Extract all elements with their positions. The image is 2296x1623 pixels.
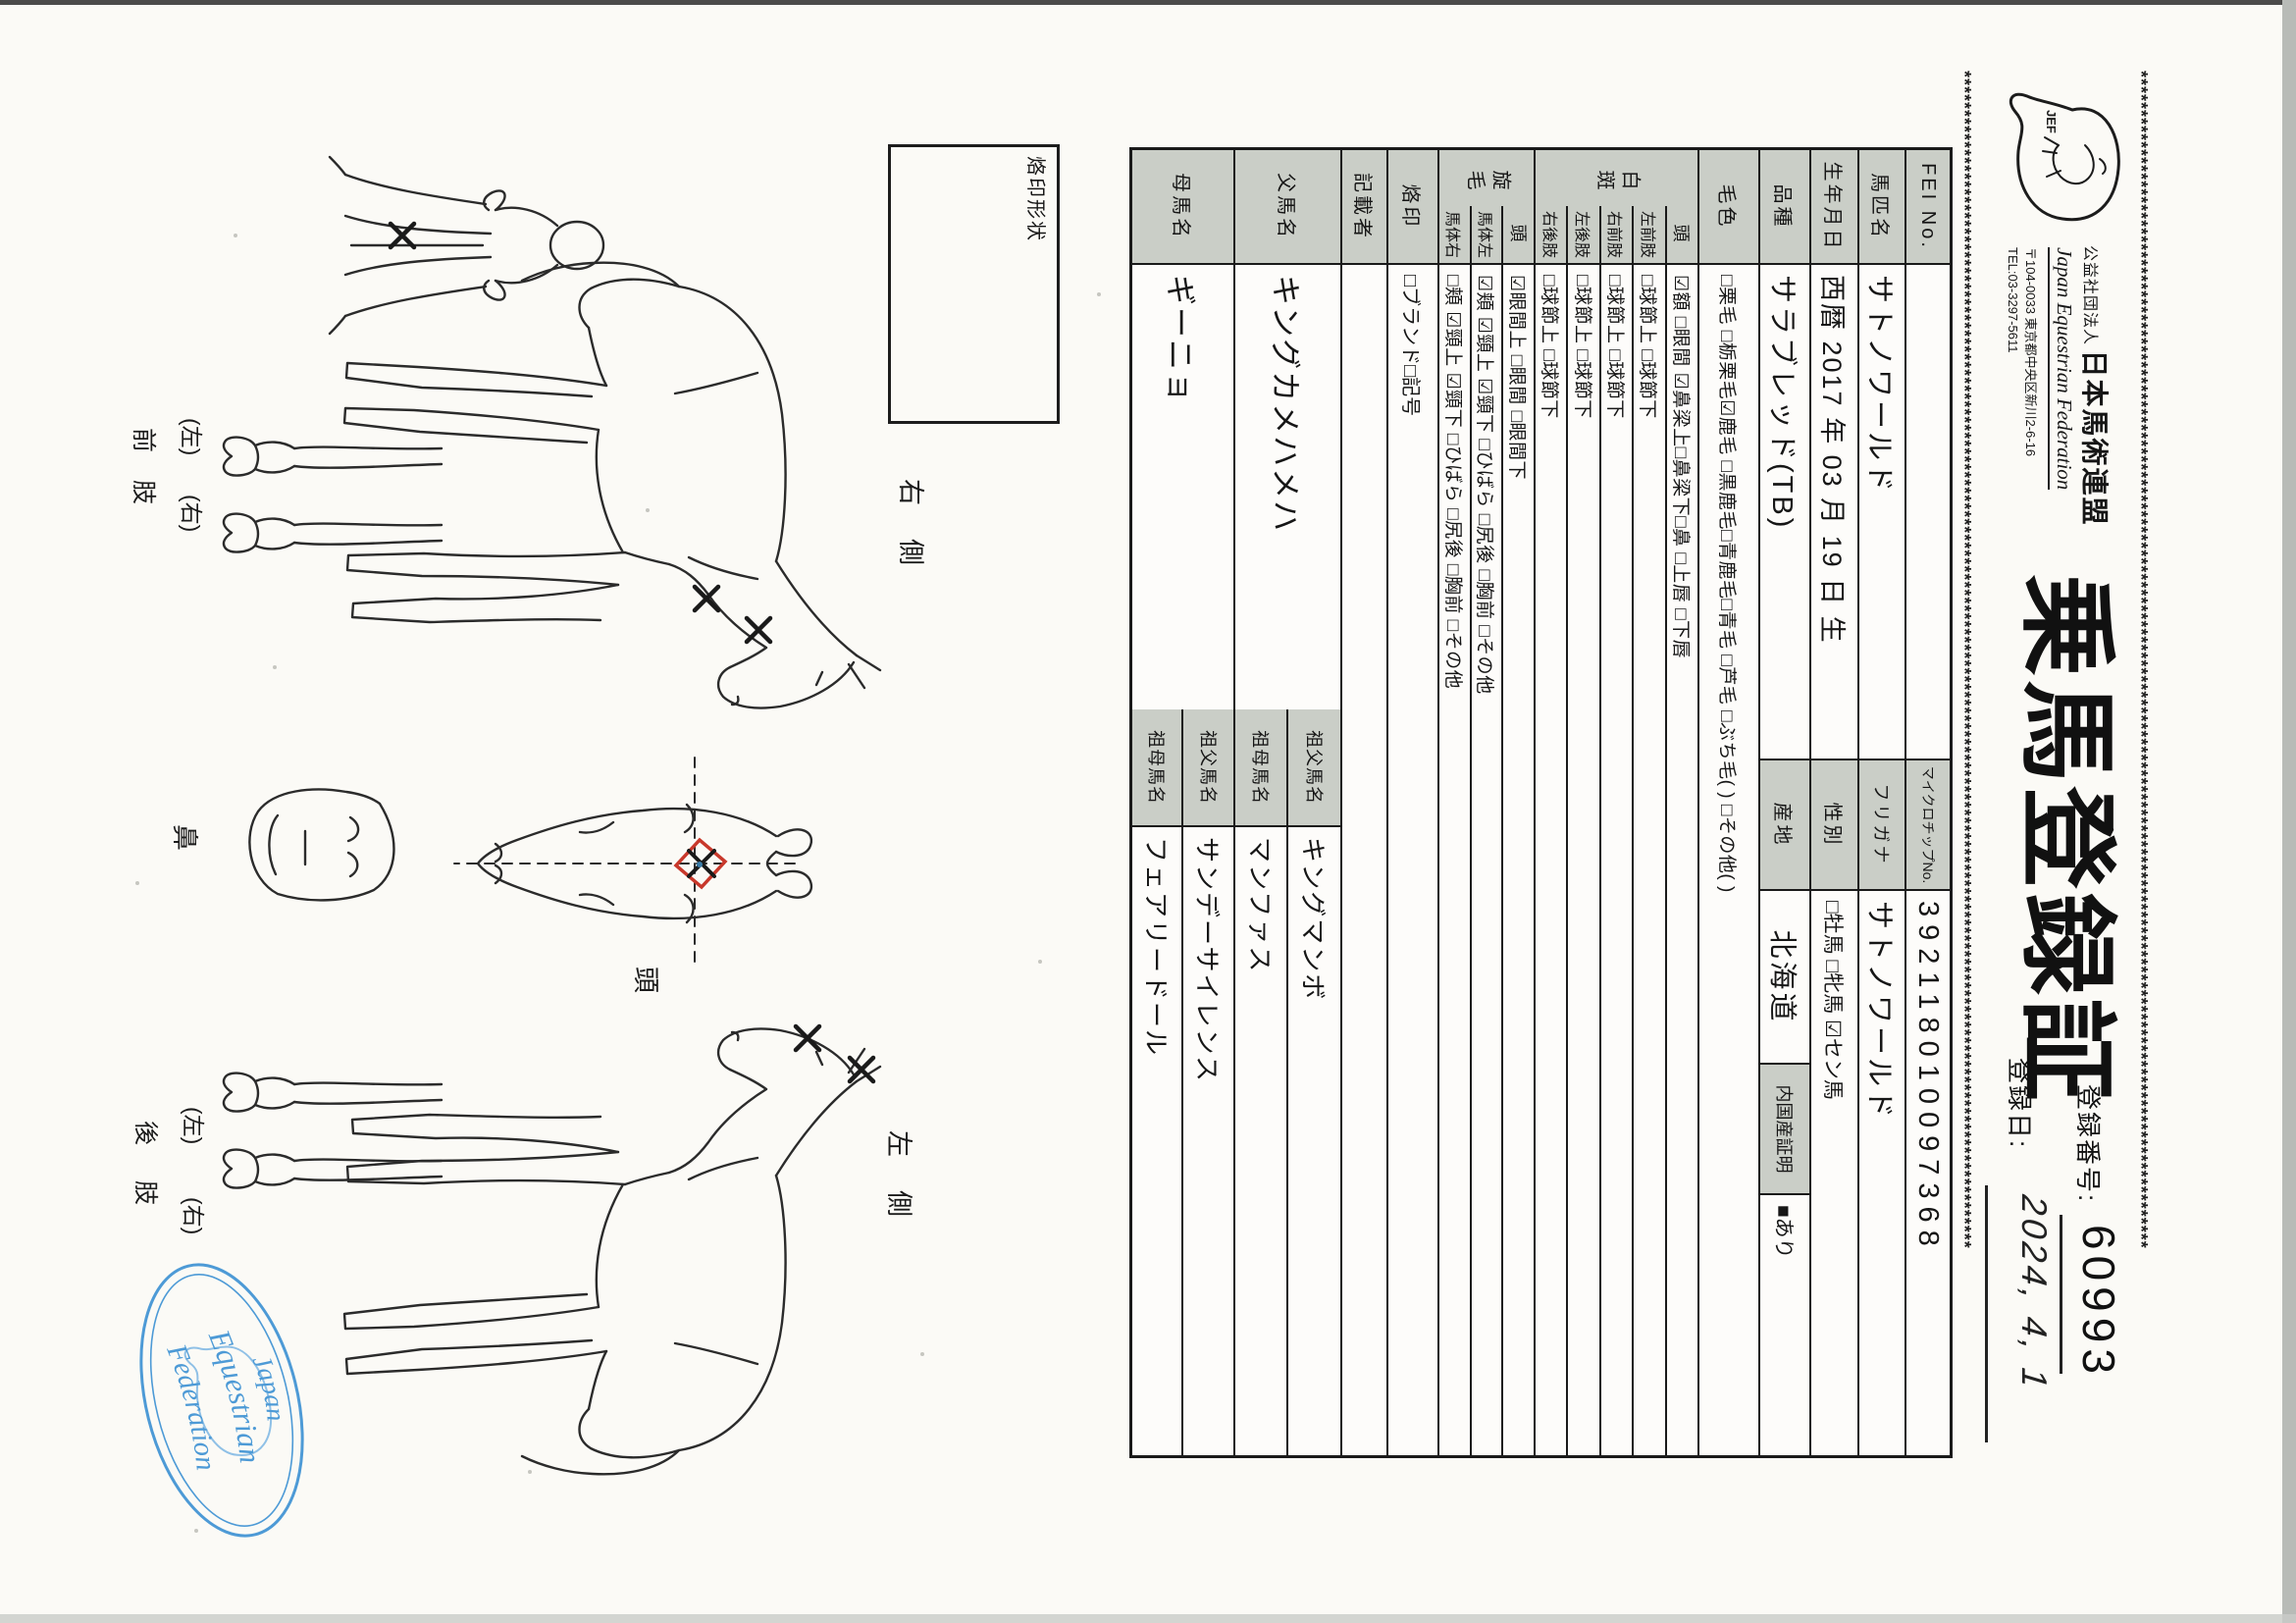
table-row-recorder: 記載者 [1342, 150, 1388, 1455]
scan-edge-bottom [0, 1614, 2296, 1623]
whorls-head-value: ☑眼間上 □眼間 □眼間下 [1503, 263, 1534, 1455]
scan-edge-right [2282, 0, 2296, 1623]
body-right-sublabel: 馬体右 [1439, 206, 1470, 263]
domestic-value: ■あり [1760, 1193, 1809, 1455]
furigana-label: フリガナ [1859, 759, 1905, 889]
origin-label: 産地 [1760, 759, 1809, 889]
org-type: 公益社団法人 [2081, 245, 2098, 345]
org-tel: TEL:03-3297-5611 [2006, 247, 2020, 352]
whorl-x-right-horse-neck-upper [747, 618, 770, 642]
whorls-head-sublabel: 頭 [1503, 206, 1534, 263]
left-side-label: 左側 [882, 1130, 920, 1250]
microchip-value: 392118010097368 [1906, 889, 1950, 1455]
white-markings-rf-row: 右前肢 □球節上 □球節下 [1601, 206, 1634, 1455]
registration-date-underline [1985, 1185, 1988, 1442]
sire-grandsire-row: 祖父馬名 キングマンボ [1289, 709, 1341, 1455]
registration-date-value: 2024, 4, 1 [2013, 1193, 2055, 1394]
registration-date-label: 登録日: [2003, 1058, 2039, 1149]
dam-grandsire-row: 祖父馬名 サンデーサイレンス [1184, 709, 1234, 1455]
white-markings-head-row: 頭 ☑額 □眼間 ☑鼻梁上□鼻梁下□鼻 □上唇 □下唇 [1667, 206, 1697, 1455]
table-section-whorls: 旋毛 頭 ☑眼間上 □眼間 □眼間下 馬体左 ☑頬 ☑頸上 ☑頸下 □ひばら □… [1439, 150, 1536, 1455]
sire-granddam-label: 祖母馬名 [1235, 709, 1287, 825]
head-markings-value: ☑額 □眼間 ☑鼻梁上□鼻梁下□鼻 □上唇 □下唇 [1667, 263, 1697, 1455]
head-front-view [454, 758, 811, 969]
front-leg-details [224, 438, 442, 552]
front-leg-right-paren: (右) [177, 495, 210, 532]
table-section-white-markings: 白斑 頭 ☑額 □眼間 ☑鼻梁上□鼻梁下□鼻 □上唇 □下唇 左前肢 □球節上 … [1536, 150, 1699, 1455]
dam-grandsire-label: 祖父馬名 [1184, 709, 1234, 825]
origin-value: 北海道 [1760, 889, 1809, 1063]
right-hindleg-sublabel: 右後肢 [1536, 206, 1566, 263]
jef-logo: JEF [1987, 77, 2129, 234]
table-row-breed: 品種 サラブレッド(TB) 産地 北海道 内国産証明 ■あり [1760, 150, 1811, 1455]
right-side-view-horse [344, 263, 880, 708]
body-left-sublabel: 馬体左 [1472, 206, 1502, 263]
registration-number-underline [2060, 1215, 2062, 1374]
whorls-head-row: 頭 ☑眼間上 □眼間 □眼間下 [1503, 206, 1534, 1455]
head-view-label: 頭 [629, 967, 667, 993]
sire-granddam-value: マンファス [1235, 825, 1287, 1455]
asterisk-border-inner: ****************************************… [1953, 71, 1974, 1427]
coat-value: □栗毛 □栃栗毛☑鹿毛 □黒鹿毛□青鹿毛□青毛 □芦毛 □ぶち毛( ) □その他… [1699, 263, 1758, 1455]
registration-number-value: 60993 [2072, 1225, 2125, 1380]
sire-grandsire-label: 祖父馬名 [1289, 709, 1341, 825]
table-row-sire: 父馬名 キングカメハメハ 祖父馬名 キングマンボ 祖母馬名 マンファス [1235, 150, 1342, 1455]
hind-legs-label: 後肢 [130, 1121, 165, 1240]
right-foreleg-sublabel: 右前肢 [1601, 206, 1632, 263]
body-left-value: ☑頬 ☑頸上 ☑頸下 □ひばら □尻後 □胸前 □その他 [1472, 263, 1502, 1455]
front-legs-label: 前肢 [128, 428, 163, 532]
sire-granddam-row: 祖母馬名 マンファス [1235, 709, 1289, 1455]
scanned-page: ****************************************… [0, 0, 2296, 1623]
table-row-name: 馬匹名 サトノワールド フリガナ サトノワールド [1859, 150, 1906, 1455]
furigana-value: サトノワールド [1859, 889, 1905, 1455]
registration-table: FEI No. マイクロチップNo. 392118010097368 馬匹名 サ… [1129, 147, 1953, 1458]
right-hindleg-value: □球節上 □球節下 [1536, 263, 1566, 1455]
horse-name-label: 馬匹名 [1859, 150, 1905, 263]
hind-leg-left-paren: (左) [179, 1107, 212, 1144]
coat-label: 毛色 [1699, 150, 1758, 263]
right-foreleg-value: □球節上 □球節下 [1601, 263, 1632, 1455]
white-markings-lf-row: 左前肢 □球節上 □球節下 [1634, 206, 1666, 1455]
fei-label: FEI No. [1906, 150, 1950, 263]
breed-value: サラブレッド(TB) [1760, 263, 1809, 759]
left-foreleg-sublabel: 左前肢 [1634, 206, 1664, 263]
certificate-document: ****************************************… [0, 0, 2296, 1623]
org-name-en: Japan Equestrian Federation [2048, 247, 2076, 490]
federation-stamp: Japan Equestrian Federation [130, 1238, 312, 1562]
nose-view [249, 789, 393, 900]
body-right-value: □頬 ☑頸上 ☑頸下 □ひばら □尻後 □胸前 □その他 [1439, 263, 1470, 1455]
sex-label: 性別 [1811, 759, 1857, 889]
whorls-body-right-row: 馬体右 □頬 ☑頸上 ☑頸下 □ひばら □尻後 □胸前 □その他 [1439, 206, 1472, 1455]
birth-label: 生年月日 [1811, 150, 1857, 263]
horse-name-value: サトノワールド [1859, 263, 1905, 759]
table-row-fei: FEI No. マイクロチップNo. 392118010097368 [1906, 150, 1950, 1455]
table-row-brand: 烙印 □ブランド□記号 [1388, 150, 1439, 1455]
fei-value [1906, 263, 1950, 759]
microchip-label: マイクロチップNo. [1906, 759, 1950, 889]
sire-label: 父馬名 [1235, 150, 1340, 263]
white-markings-label: 白斑 [1536, 150, 1697, 206]
left-side-view-horse [344, 1028, 880, 1474]
whorls-label: 旋毛 [1439, 150, 1534, 206]
hind-leg-details [224, 1073, 442, 1188]
hind-leg-right-paren: (右) [179, 1197, 212, 1234]
recorder-value [1342, 263, 1386, 1455]
neck-top-view [330, 157, 603, 334]
domestic-label: 内国産証明 [1760, 1063, 1809, 1193]
white-markings-lh-row: 左後肢 □球節上 □球節下 [1568, 206, 1600, 1455]
brand-label: 烙印 [1388, 150, 1437, 263]
jef-logo-text: JEF [2044, 110, 2059, 133]
recorder-label: 記載者 [1342, 150, 1386, 263]
sire-grandsire-value: キングマンボ [1289, 825, 1341, 1455]
table-row-birth: 生年月日 西暦 2017 年 03 月 19 日 生 性別 □牡馬 □牝馬 ☑セ… [1811, 150, 1859, 1455]
whorls-body-left-row: 馬体左 ☑頬 ☑頸上 ☑頸下 □ひばら □尻後 □胸前 □その他 [1472, 206, 1504, 1455]
sex-value: □牡馬 □牝馬 ☑セン馬 [1811, 889, 1857, 1455]
page-title: 乗馬登録証 [2005, 574, 2147, 1105]
sire-value: キングカメハメハ [1235, 263, 1340, 709]
org-address: 〒104-0033 東京都中央区新川2-6-16 [2022, 247, 2041, 456]
registration-number-label: 登録番号: [2071, 1084, 2108, 1203]
left-hindleg-value: □球節上 □球節下 [1568, 263, 1598, 1455]
birth-value: 西暦 2017 年 03 月 19 日 生 [1811, 263, 1857, 759]
head-sublabel: 頭 [1667, 206, 1697, 263]
front-leg-left-paren: (左) [177, 418, 210, 455]
breed-label: 品種 [1760, 150, 1809, 263]
table-row-coat: 毛色 □栗毛 □栃栗毛☑鹿毛 □黒鹿毛□青鹿毛□青毛 □芦毛 □ぶち毛( ) □… [1699, 150, 1760, 1455]
org-name-line: 公益社団法人 日本馬術連盟 [2076, 245, 2115, 526]
nose-view-label: 鼻 [168, 824, 206, 851]
dam-grandsire-value: サンデーサイレンス [1184, 825, 1234, 1455]
left-foreleg-value: □球節上 □球節下 [1634, 263, 1664, 1455]
scan-edge-top [0, 0, 2296, 5]
right-side-label: 右側 [894, 479, 932, 599]
left-hindleg-sublabel: 左後肢 [1568, 206, 1598, 263]
whorl-x-left-horse-neck [796, 1026, 819, 1050]
white-markings-rh-row: 右後肢 □球節上 □球節下 [1536, 206, 1568, 1455]
org-name: 日本馬術連盟 [2079, 349, 2110, 526]
brand-value: □ブランド□記号 [1388, 263, 1437, 1455]
